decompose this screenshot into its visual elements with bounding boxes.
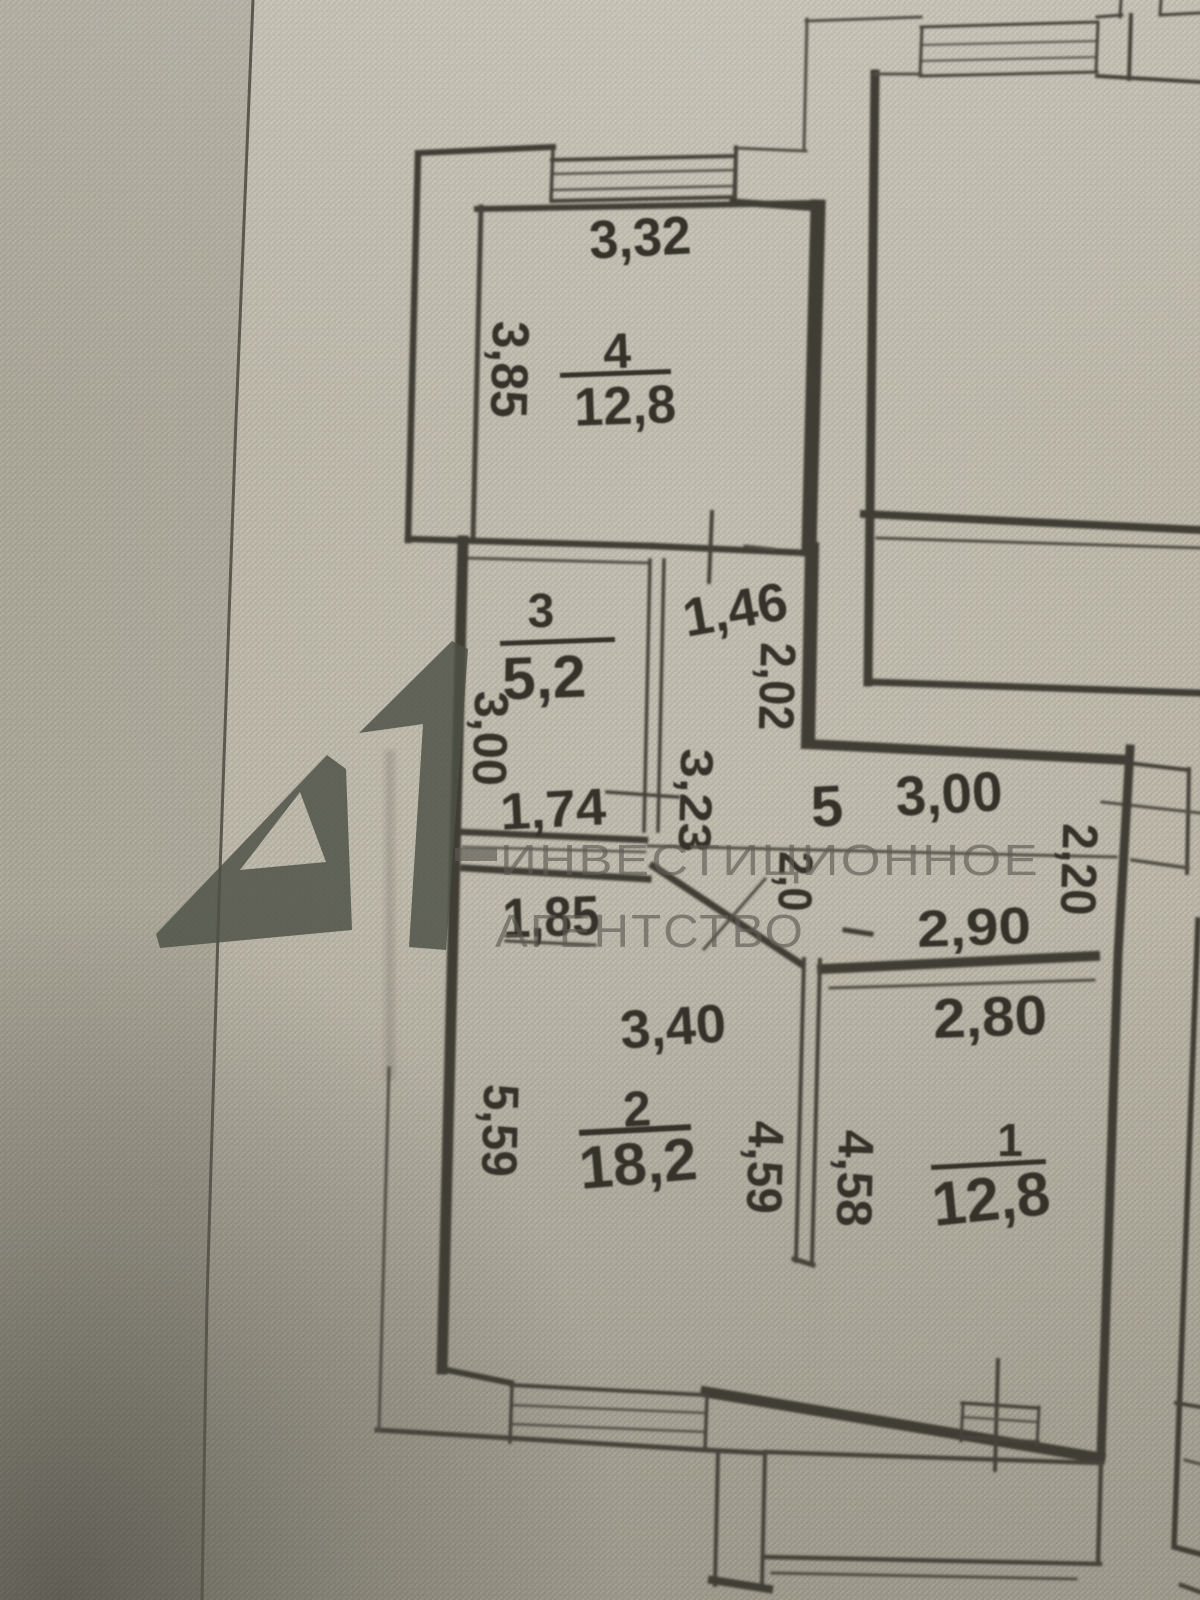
svg-text:4,59: 4,59 (736, 1120, 794, 1214)
svg-text:1: 1 (997, 1114, 1023, 1166)
svg-text:2,02: 2,02 (748, 642, 806, 731)
svg-text:3,32: 3,32 (588, 205, 693, 270)
svg-text:18,2: 18,2 (576, 1125, 699, 1202)
svg-text:4,58: 4,58 (826, 1129, 885, 1227)
svg-text:5,59: 5,59 (471, 1083, 529, 1177)
svg-text:3,40: 3,40 (618, 993, 728, 1060)
svg-text:3,00: 3,00 (894, 759, 1004, 828)
svg-text:2,90: 2,90 (916, 897, 1032, 959)
svg-text:2,20: 2,20 (1050, 823, 1108, 916)
svg-text:12,8: 12,8 (929, 1159, 1054, 1240)
svg-text:3,00: 3,00 (462, 690, 517, 786)
svg-text:3,85: 3,85 (479, 320, 540, 418)
svg-text:2,80: 2,80 (932, 983, 1048, 1050)
svg-text:3: 3 (528, 585, 555, 638)
svg-text:ИНВЕСТИЦИОННОЕ: ИНВЕСТИЦИОННОЕ (500, 836, 1040, 885)
svg-text:5: 5 (809, 773, 845, 840)
svg-text:1,74: 1,74 (499, 778, 608, 841)
svg-text:12,8: 12,8 (573, 374, 677, 438)
svg-text:АГЕНТСТВО: АГЕНТСТВО (495, 905, 805, 957)
